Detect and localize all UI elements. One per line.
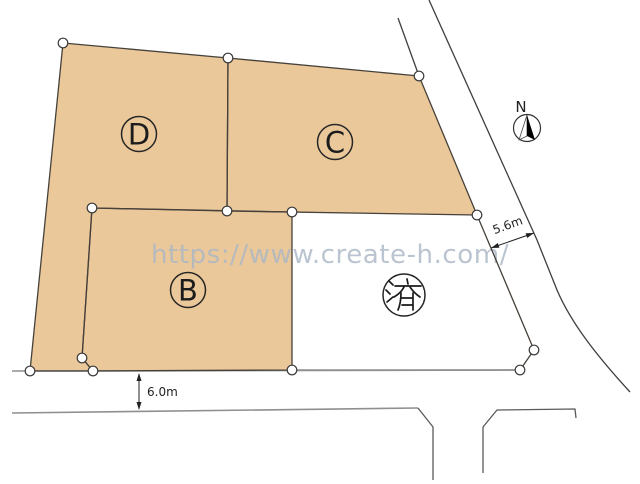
dimension-5-6m-arrowhead-right bbox=[526, 233, 534, 238]
road-diagonal-left-edge bbox=[398, 18, 419, 76]
lot-map-svg: https://www.create-h.com/ bbox=[0, 0, 640, 480]
watermark-url: https://www.create-h.com/ bbox=[151, 240, 509, 270]
vertex-marker bbox=[472, 210, 482, 220]
vertex-marker bbox=[515, 365, 525, 375]
lot-c-label-text: C bbox=[325, 126, 345, 160]
dimension-6-0m-arrowhead-top bbox=[137, 373, 142, 381]
lot-map-canvas: https://www.create-h.com/ bbox=[0, 0, 640, 480]
vertex-marker bbox=[287, 365, 297, 375]
lot-d-label-text: D bbox=[128, 118, 150, 152]
compass-north: N bbox=[514, 98, 541, 142]
lot-b-label-text: B bbox=[178, 274, 198, 308]
compass-n-label: N bbox=[515, 98, 526, 116]
vertex-marker bbox=[77, 353, 87, 363]
dimension-6-0m-label: 6.0m bbox=[147, 385, 178, 399]
dimension-6-0m-arrowhead-bottom bbox=[137, 402, 142, 410]
dimension-road-bottom: 6.0m bbox=[137, 373, 178, 410]
vertex-marker bbox=[25, 366, 35, 376]
vertex-marker bbox=[529, 345, 539, 355]
vertex-marker bbox=[223, 53, 233, 63]
vertex-marker bbox=[222, 206, 232, 216]
vertex-marker bbox=[87, 203, 97, 213]
road-bottom-lower-edge bbox=[12, 408, 418, 413]
dimension-5-6m-label: 5.6m bbox=[491, 213, 525, 237]
vertex-marker bbox=[414, 71, 424, 81]
vertex-marker bbox=[287, 207, 297, 217]
vertex-marker bbox=[58, 38, 68, 48]
lot-fills bbox=[30, 43, 534, 371]
road-junction-left-edge bbox=[418, 408, 433, 480]
vertex-marker bbox=[88, 366, 98, 376]
road-junction-right-edge bbox=[483, 409, 576, 473]
